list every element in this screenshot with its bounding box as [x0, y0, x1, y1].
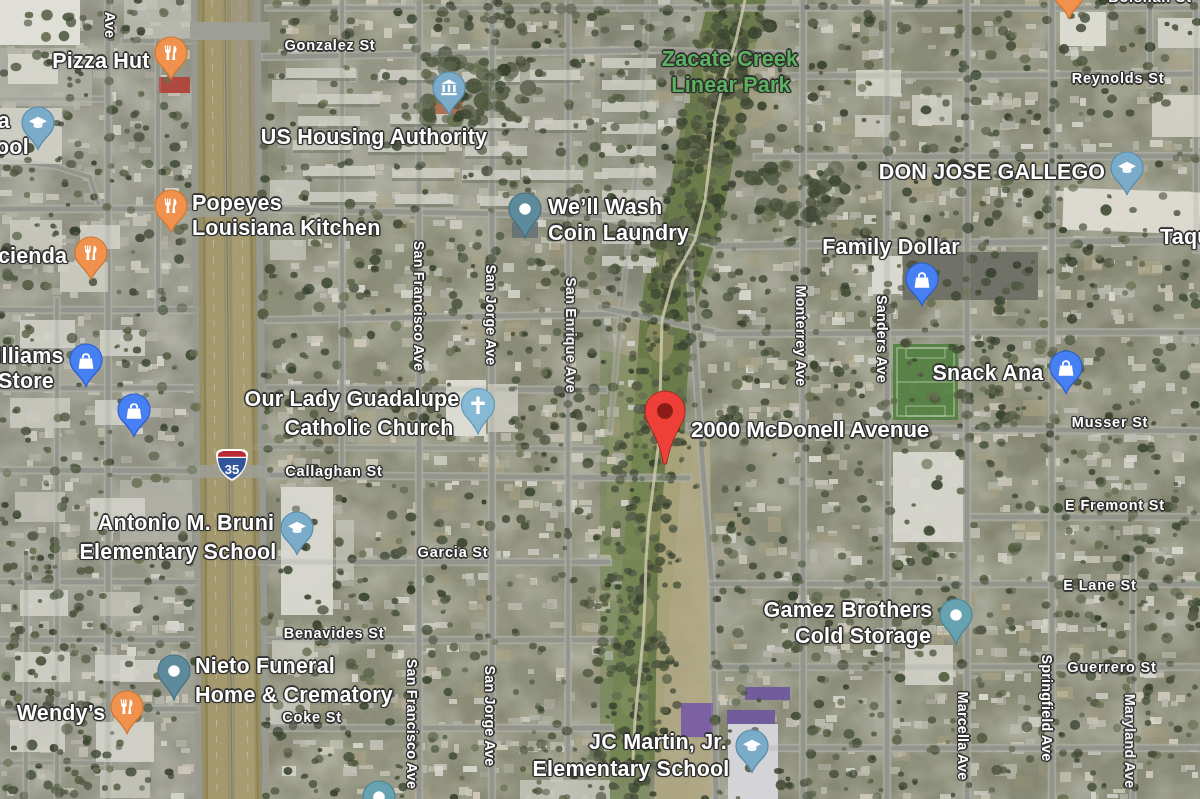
svg-text:35: 35	[225, 462, 239, 477]
